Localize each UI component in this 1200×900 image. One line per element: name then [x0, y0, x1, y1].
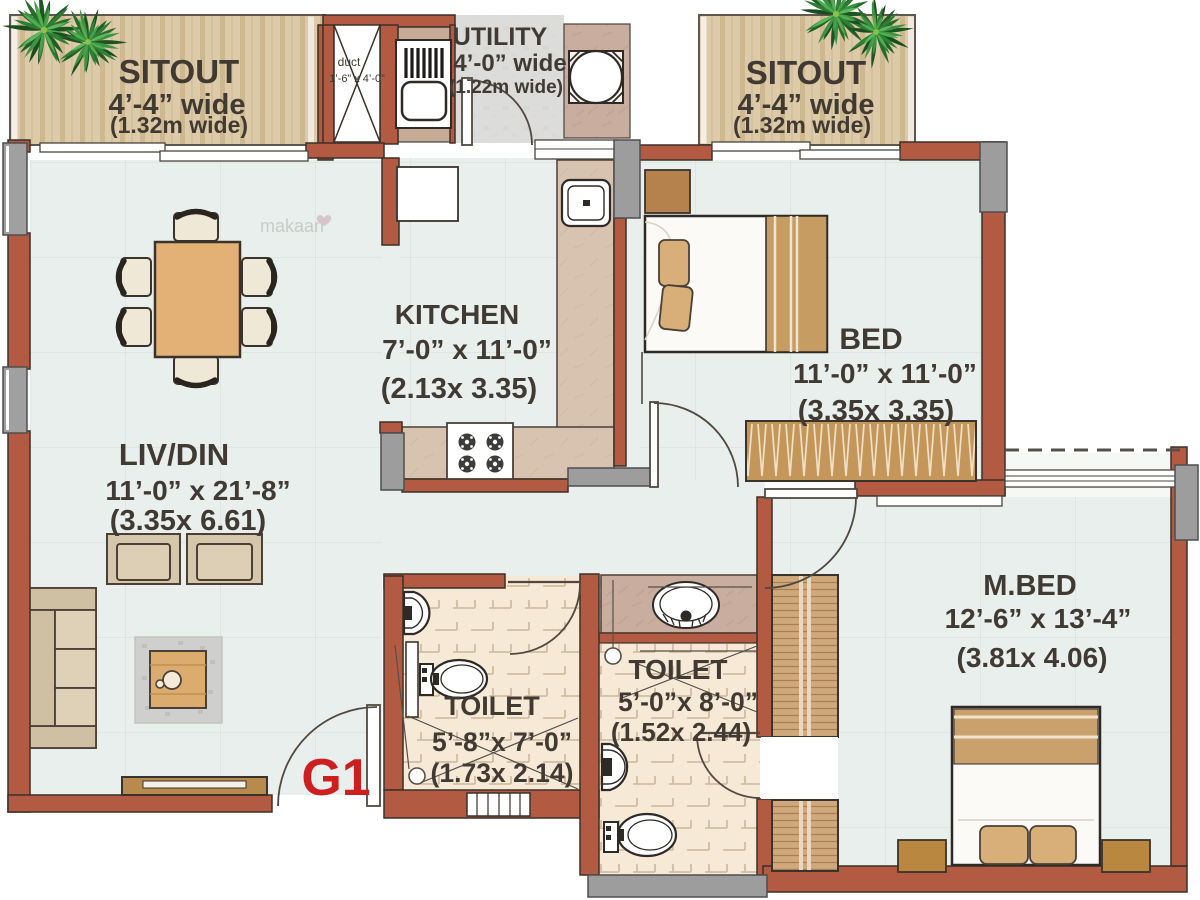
svg-text:1’-6” x 4’-0”: 1’-6” x 4’-0”: [329, 73, 385, 85]
svg-text:LIV/DIN: LIV/DIN: [119, 437, 229, 472]
svg-text:makaan: makaan: [260, 216, 324, 236]
svg-text:KITCHEN: KITCHEN: [395, 299, 519, 330]
svg-text:5’-0”x 8’-0”: 5’-0”x 8’-0”: [618, 687, 758, 717]
svg-text:(3.35x 3.35): (3.35x 3.35): [798, 395, 954, 427]
svg-text:7’-0” x 11’-0”: 7’-0” x 11’-0”: [382, 334, 552, 365]
svg-text:(1.73x 2.14): (1.73x 2.14): [431, 758, 574, 788]
svg-text:BED: BED: [839, 323, 902, 356]
svg-text:TOILET: TOILET: [628, 654, 727, 685]
svg-text:4’-0” wide: 4’-0” wide: [453, 50, 566, 77]
svg-text:duct: duct: [338, 55, 361, 69]
svg-text:5’-8”x 7’-0”: 5’-8”x 7’-0”: [432, 727, 572, 757]
svg-text:(1.52x 2.44): (1.52x 2.44): [611, 717, 751, 747]
svg-text:M.BED: M.BED: [983, 570, 1076, 602]
svg-text:G1: G1: [301, 749, 370, 807]
svg-text:(1.32m wide): (1.32m wide): [110, 112, 248, 138]
svg-text:(2.13x 3.35): (2.13x 3.35): [381, 373, 537, 405]
svg-text:UTILITY: UTILITY: [453, 23, 548, 51]
svg-text:(3.81x 4.06): (3.81x 4.06): [957, 642, 1108, 673]
svg-text:11’-0” x 21’-8”: 11’-0” x 21’-8”: [105, 475, 290, 506]
svg-text:11’-0” x 11’-0”: 11’-0” x 11’-0”: [793, 358, 977, 389]
svg-text:(3.35x 6.61): (3.35x 6.61): [110, 505, 266, 537]
svg-text:(1.22m wide): (1.22m wide): [449, 77, 563, 98]
svg-text:12’-6” x 13’-4”: 12’-6” x 13’-4”: [945, 603, 1132, 634]
svg-text:(1.32m wide): (1.32m wide): [733, 112, 871, 138]
svg-text:SITOUT: SITOUT: [746, 54, 866, 91]
svg-text:SITOUT: SITOUT: [119, 53, 239, 90]
svg-text:TOILET: TOILET: [444, 691, 540, 721]
